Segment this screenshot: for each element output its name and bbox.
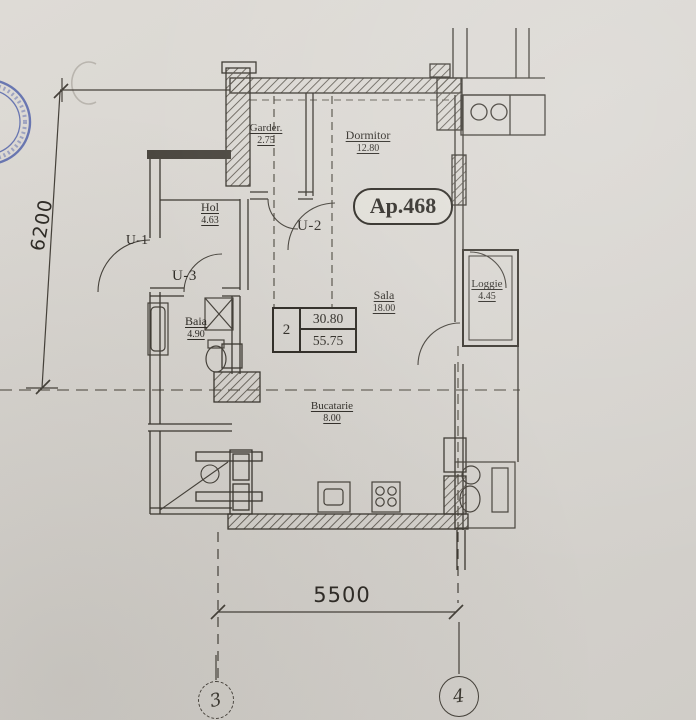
room-label-bucatarie: Bucatarie 8.00 [298, 400, 366, 424]
pencil-mark [72, 62, 96, 104]
room-name-sala: Sala [356, 289, 412, 303]
grid-axis-label-4: 4 [452, 685, 466, 707]
toilet [206, 346, 226, 372]
axis-dashed-lines [0, 96, 520, 530]
stamp-mark [0, 80, 30, 164]
scanned-floor-plan-page: Garder. 2.75 Dormitor 12.80 Ap.468 Hol 4… [0, 0, 696, 720]
door-label-u2: U-2 [297, 218, 322, 235]
room-label-garder: Garder. 2.75 [234, 122, 298, 146]
room-area-bucatarie: 8.00 [298, 413, 366, 425]
room-label-hol: Hol 4.63 [184, 201, 236, 226]
room-name-loggie: Loggie [458, 278, 516, 291]
room-name-dormitor: Dormitor [330, 129, 406, 143]
apartment-number-badge: Ap.468 [353, 188, 453, 225]
room-area-baia: 4.90 [168, 329, 224, 341]
grid-axis-label-3: 3 [208, 688, 224, 711]
area-summary-table: 2 30.80 55.75 [272, 307, 357, 353]
grid-axis-bubble-4: 4 [439, 676, 479, 717]
door-label-u3: U-3 [172, 268, 197, 285]
rooms-count-cell: 2 [274, 309, 301, 351]
room-name-baia: Baia [168, 315, 224, 329]
room-label-dormitor: Dormitor 12.80 [330, 129, 406, 154]
total-area-cell: 55.75 [301, 330, 355, 351]
floor-plan-drawing [0, 0, 696, 720]
room-label-baia: Baia 4.90 [168, 315, 224, 340]
room-area-loggie: 4.45 [458, 291, 516, 303]
room-name-bucatarie: Bucatarie [298, 400, 366, 413]
vestibule-fixture [201, 465, 219, 483]
living-area-cell: 30.80 [301, 309, 355, 330]
door-loggia-arc [418, 323, 460, 365]
kitchen-sink [318, 482, 350, 512]
stove [372, 482, 400, 512]
room-area-dormitor: 12.80 [330, 143, 406, 155]
door-label-u1: U-1 [126, 232, 149, 248]
room-area-sala: 18.00 [356, 303, 412, 315]
door-garder-arc [268, 199, 298, 229]
dimension-horizontal-5500: 5500 [310, 583, 374, 607]
room-label-loggie: Loggie 4.45 [458, 278, 516, 302]
room-area-garder: 2.75 [234, 135, 298, 147]
room-label-sala: Sala 18.00 [356, 289, 412, 314]
room-name-garder: Garder. [234, 122, 298, 135]
grid-axis-bubble-3: 3 [198, 681, 234, 719]
room-name-hol: Hol [184, 201, 236, 215]
room-area-hol: 4.63 [184, 215, 236, 227]
